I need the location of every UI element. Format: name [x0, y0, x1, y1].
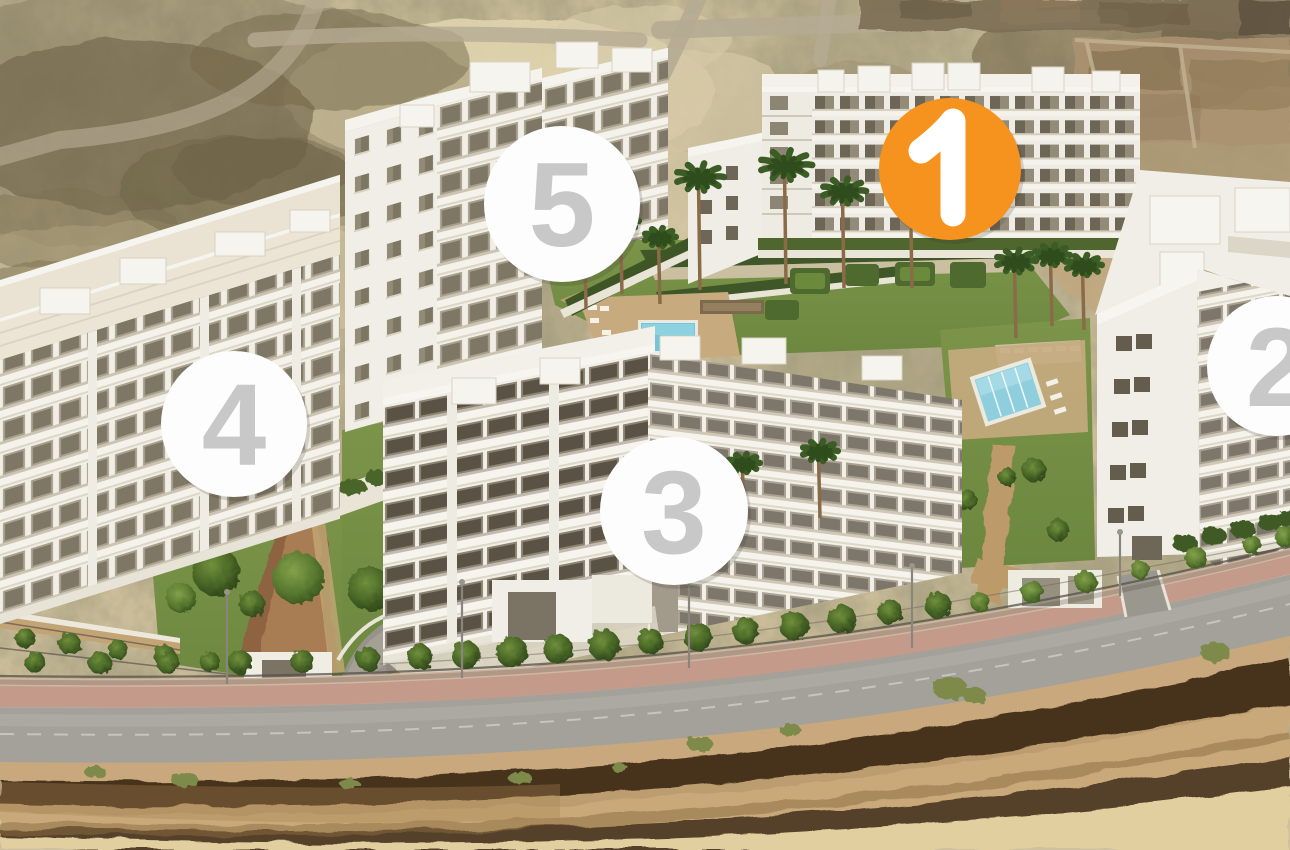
svg-text:5: 5: [529, 138, 596, 272]
svg-text:4: 4: [202, 360, 267, 490]
svg-text:2: 2: [1246, 305, 1290, 430]
svg-text:3: 3: [641, 447, 707, 579]
